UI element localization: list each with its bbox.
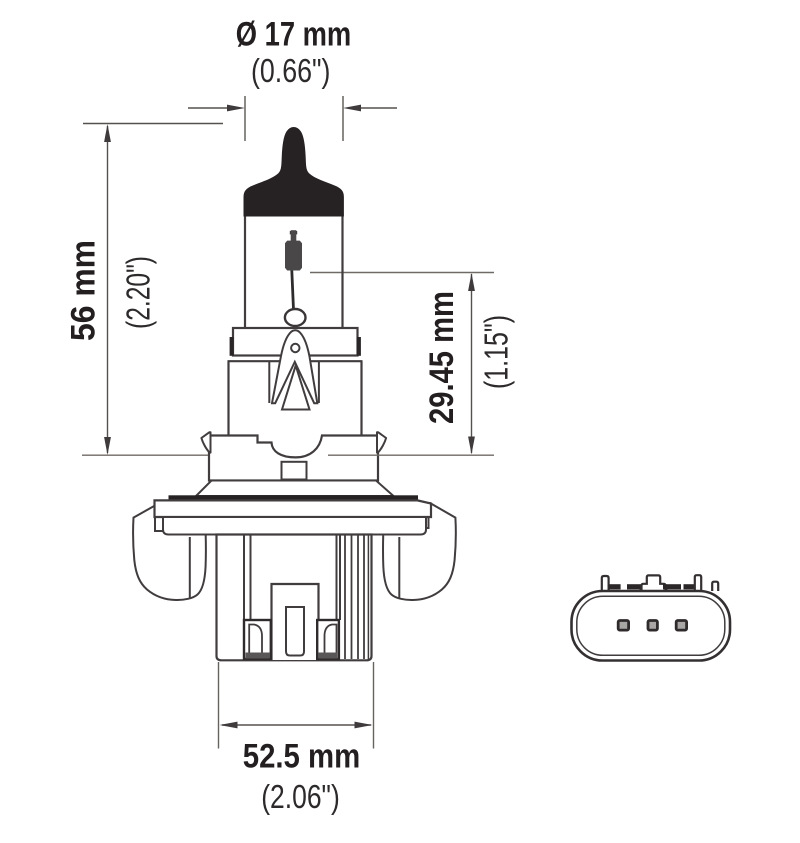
svg-text:Ø 17 mm: Ø 17 mm — [236, 16, 352, 54]
svg-text:(2.06"): (2.06") — [261, 778, 340, 815]
svg-text:56 mm: 56 mm — [65, 240, 103, 341]
svg-text:(0.66"): (0.66") — [251, 52, 331, 89]
svg-text:29.45 mm: 29.45 mm — [423, 291, 461, 424]
svg-text:(2.20"): (2.20") — [120, 256, 157, 329]
svg-text:(1.15"): (1.15") — [478, 315, 515, 389]
svg-text:52.5 mm: 52.5 mm — [243, 738, 361, 776]
